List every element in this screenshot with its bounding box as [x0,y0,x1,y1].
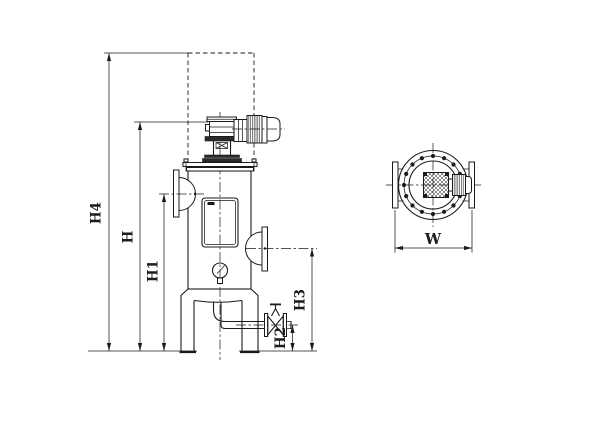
label-h: H [121,230,137,243]
top-motor-end-cap [466,177,472,194]
motor-assembly [203,116,286,162]
side-nozzle-left [393,162,404,208]
label-h4: H4 [89,202,105,224]
dimension-w: W [395,210,472,253]
technical-drawing-page: H4 H H1 H2 H3 [0,0,605,428]
label-h1: H1 [146,260,162,282]
valve-bonnet [272,309,280,317]
dimension-h1: H1 [146,194,167,351]
inlet-nozzle [159,170,206,217]
valve-handle [270,304,281,306]
coupling-guard [216,143,228,149]
outlet-nozzle [246,227,318,271]
label-w: W [424,231,442,248]
filter-assembly-drawing: H4 H H1 H2 H3 [0,0,605,428]
dimension-h3: H3 [293,249,315,352]
label-h3: H3 [293,289,309,311]
label-h2: H2 [273,327,289,349]
front-view: H4 H H1 H2 H3 [88,53,317,360]
electric-motor [232,116,285,144]
top-view: W [386,143,481,253]
top-motor-assembly [424,173,472,198]
